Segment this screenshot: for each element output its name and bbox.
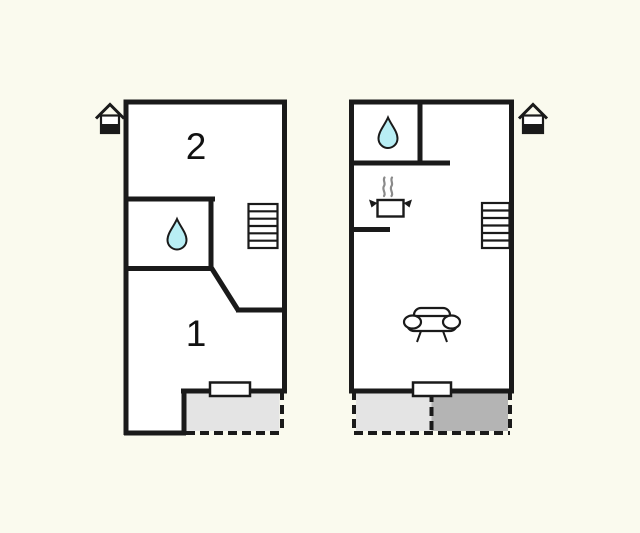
left-terrace-area	[187, 394, 280, 432]
sofa-arm-right	[443, 316, 460, 329]
stairs-icon	[482, 203, 510, 248]
floor-plan-image: 2 1	[0, 0, 640, 533]
house-body-fill	[524, 124, 542, 132]
steam-icon	[383, 178, 384, 197]
sofa-arm-left	[404, 316, 421, 329]
stairs-icon	[249, 204, 278, 248]
steam-icon	[391, 178, 392, 197]
door-icon	[210, 383, 250, 397]
pot-body	[378, 200, 404, 217]
door-icon	[413, 383, 451, 397]
right-terrace-dark-area	[432, 394, 509, 432]
room-label-1: 1	[186, 313, 207, 354]
page-background	[0, 0, 640, 533]
room-label-2: 2	[186, 126, 207, 167]
house-body-fill	[102, 124, 118, 132]
floor-plan-left: 2 1	[96, 100, 287, 436]
right-terrace-light-area	[356, 394, 432, 432]
left-plan-interior-notch	[126, 380, 184, 433]
